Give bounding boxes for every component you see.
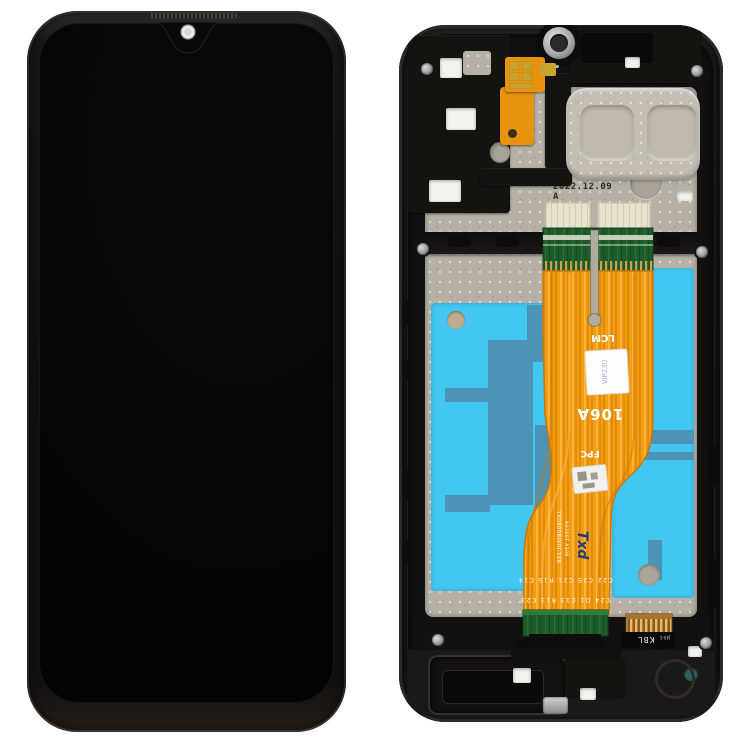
component-refs-row2: C24 D1 C13 R13 C23 (520, 596, 610, 603)
label-fpc: FPC (580, 448, 600, 458)
earpiece-grille (149, 13, 237, 18)
label-lcm: LCM (591, 332, 615, 343)
flex-tab-left (546, 203, 590, 231)
product-photo: M02BWLTEX 5 Q 8 2022.12.09 A (0, 0, 750, 750)
flex-slot-hole (588, 314, 601, 327)
flex-slot (591, 230, 599, 316)
label-model: 106A (577, 405, 624, 423)
flex-bottom-base (511, 647, 621, 659)
pcb-bottom-edge (523, 610, 608, 615)
part-number-line1: TXD600B(V0)-168 (555, 510, 561, 564)
sticker-text: VIP230 (601, 360, 609, 385)
part-number-line2: A0360T A106 (563, 521, 569, 557)
kbl-sub-label: J40-1 (659, 635, 671, 640)
flex-tab-right (598, 203, 650, 230)
kbl-label: KBL (637, 635, 654, 644)
flex-cable: LCM 106A FPC VIP230 Txd TXD600B(V0)-168 … (399, 25, 723, 722)
camera-notch (156, 22, 220, 58)
qr-label-body (572, 464, 609, 493)
front-camera-lens (184, 28, 192, 36)
brand-logo: Txd (574, 531, 590, 561)
front-screen (39, 23, 334, 703)
qr-pixels (577, 471, 587, 481)
rear-frame: M02BWLTEX 5 Q 8 2022.12.09 A (399, 25, 723, 722)
sticker: VIP230 (585, 349, 629, 395)
front-assembly (27, 11, 346, 732)
qr-pixels (590, 472, 598, 480)
component-refs-row1: C22 C25 C21 R15 C14 (517, 576, 612, 583)
qr-label (572, 464, 609, 493)
kbl-connector-lip (626, 614, 672, 619)
